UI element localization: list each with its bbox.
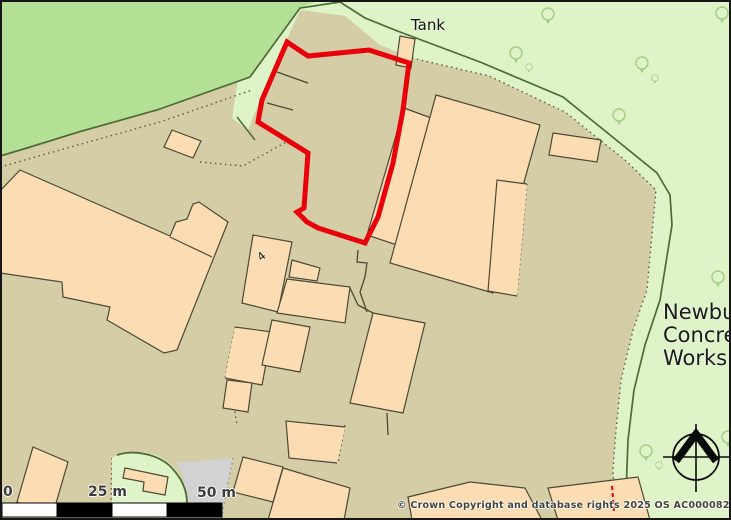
scale-start-label: 0 [3,484,13,500]
scale-bar-segment [167,503,222,517]
scale-bar-segment [112,503,167,517]
scale-bar [2,503,222,517]
building-footprint [286,421,345,463]
tank-label: Tank [411,16,445,34]
area-name-line: Newbury [663,301,731,324]
building-footprint [223,380,252,412]
area-name-line: Works [663,347,731,370]
scale-bar-segment [2,503,57,517]
attribution-text: © Crown Copyright and database rights 20… [397,500,731,511]
map-canvas [0,0,731,520]
area-name-line: Concrete [663,324,731,347]
scale-bar-segment [57,503,112,517]
scale-mid-label: 25 m [88,484,127,500]
scale-end-label: 50 m [197,485,236,501]
map-frame: Tank 4 Newbury Concrete Works 0 25 m 50 … [0,0,731,520]
area-name-label: Newbury Concrete Works [663,301,731,370]
